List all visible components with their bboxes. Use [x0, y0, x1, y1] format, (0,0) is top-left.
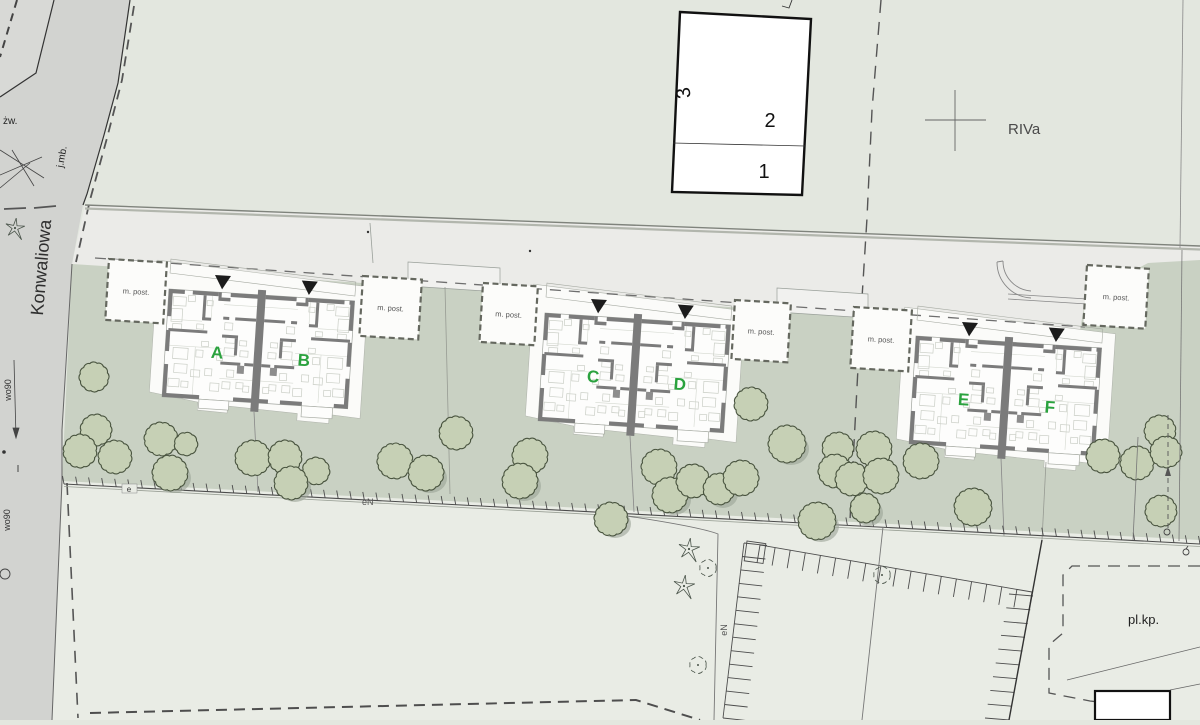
svg-text:m. post.: m. post.	[377, 303, 404, 314]
svg-text:C: C	[586, 367, 599, 387]
svg-text:1: 1	[758, 161, 769, 183]
svg-text:eN: eN	[719, 624, 729, 636]
svg-text:F: F	[1044, 397, 1056, 417]
svg-text:m. post.: m. post.	[495, 309, 522, 320]
svg-text:e: e	[127, 485, 132, 494]
svg-text:wo90: wo90	[3, 379, 13, 402]
svg-text:m. post.: m. post.	[122, 286, 149, 297]
svg-text:D: D	[673, 374, 686, 394]
svg-text:RIVa: RIVa	[1008, 121, 1041, 138]
svg-text:wo90: wo90	[2, 509, 12, 532]
svg-text:2: 2	[764, 110, 775, 132]
svg-text:m. post.: m. post.	[1102, 292, 1129, 303]
svg-text:pl.kp.: pl.kp.	[1128, 612, 1159, 627]
svg-text:m. post.: m. post.	[748, 326, 775, 337]
svg-text:E: E	[957, 390, 970, 410]
svg-text:m. post.: m. post.	[867, 334, 894, 345]
svg-text:B: B	[297, 350, 310, 370]
svg-text:eN: eN	[362, 497, 374, 507]
svg-text:A: A	[210, 343, 223, 363]
svg-text:żw.: żw.	[3, 116, 17, 127]
